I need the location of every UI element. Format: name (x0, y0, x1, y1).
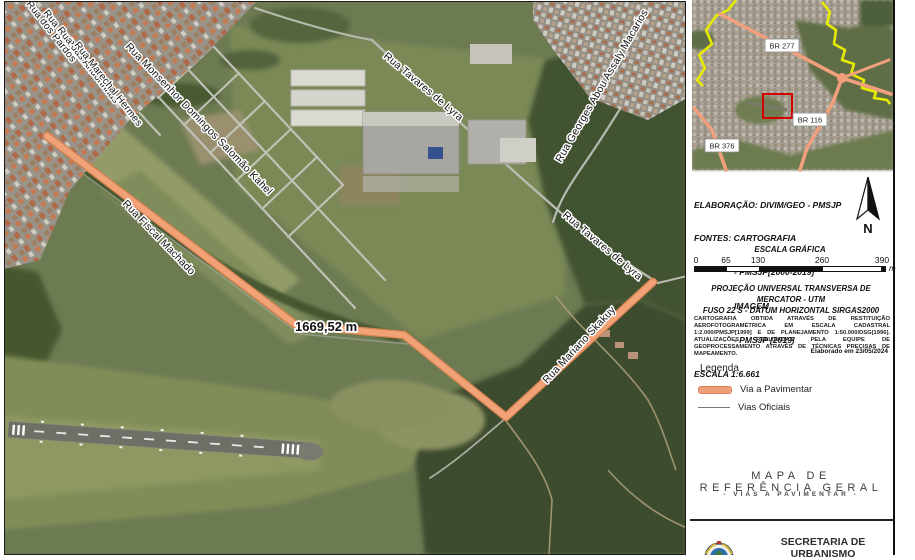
elaboration-date: Elaborado em 23/05/2024 (690, 348, 888, 355)
via-pavimentar-swatch (698, 386, 732, 394)
locator-inset-map: BR 277 BR 116 BR 376 (692, 0, 894, 172)
projection-line-2: FUSO 22 S - DATUM HORIZONTAL SIRGAS2000 (690, 305, 892, 316)
inset-aerial: BR 277 BR 116 BR 376 (692, 0, 894, 172)
scale-tick-label: 65 (721, 255, 730, 265)
map-subtitle: - VIAS A PAVIMENTAR - (690, 491, 892, 498)
scale-tick-label: 260 (815, 255, 829, 265)
br376-label: BR 376 (709, 142, 734, 151)
projection-line-1: PROJEÇÃO UNIVERSAL TRANSVERSA DE MERCATO… (690, 283, 892, 305)
layout-frame-line (893, 0, 895, 555)
br277-label: BR 277 (769, 42, 794, 51)
aerial-imagery: Rua dos Pardos Rua do Rouxinol Rua das A… (5, 2, 685, 554)
main-map: Rua dos Pardos Rua do Rouxinol Rua das A… (4, 1, 686, 555)
scale-bar-graphic (694, 266, 886, 272)
municipal-coat-of-arms (700, 538, 738, 555)
legend-item-label: Vias Oficiais (738, 402, 790, 413)
scale-tick-label: 390 (875, 255, 889, 265)
legend-item-vias-oficiais: Vias Oficiais (698, 402, 790, 413)
north-label: N (863, 221, 872, 236)
scale-bar: 0 65 130 260 390 m (694, 255, 894, 279)
map-document-page: { "map": { "distance_label": "1669,52 m"… (0, 0, 915, 555)
elaboration-line: FONTES: CARTOGRAFIA (694, 233, 864, 244)
elaboration-line: ELABORAÇÃO: DIVIM/GEO - PMSJP (694, 200, 864, 211)
br116-label: BR 116 (798, 116, 822, 125)
projection-block: PROJEÇÃO UNIVERSAL TRANSVERSA DE MERCATO… (690, 283, 892, 316)
secretaria-label: SECRETARIA DE URBANISMO (752, 536, 894, 560)
legend-item-via-pavimentar: Via a Pavimentar (698, 384, 812, 395)
distance-label: 1669,52 m (295, 319, 357, 334)
legend-item-label: Via a Pavimentar (740, 384, 812, 395)
graphic-scale-title: ESCALA GRÁFICA (690, 245, 890, 254)
legend-title: Legenda (700, 363, 739, 374)
footer-divider (690, 519, 894, 521)
scale-tick-label: 0 (694, 255, 699, 265)
north-arrow: N (850, 175, 886, 237)
vias-oficiais-swatch (698, 407, 730, 408)
highway-junction (837, 73, 847, 83)
scale-tick-label: 130 (751, 255, 765, 265)
